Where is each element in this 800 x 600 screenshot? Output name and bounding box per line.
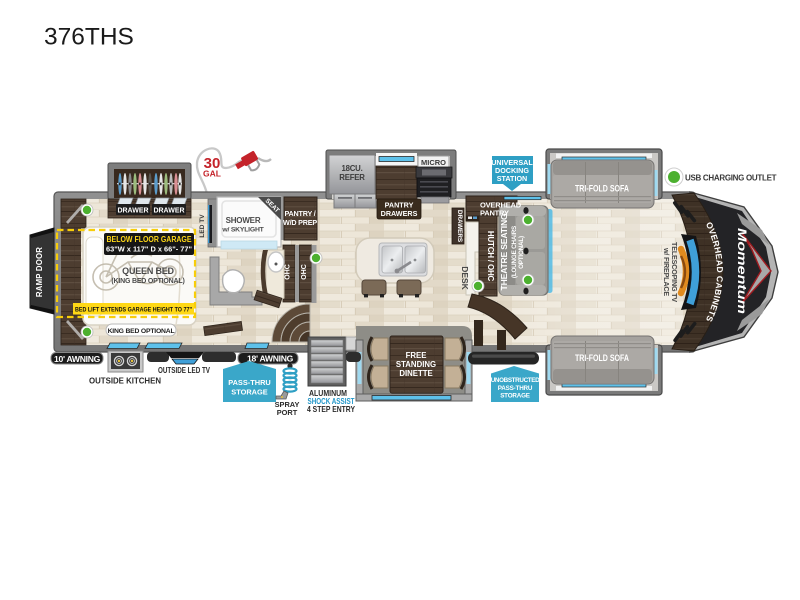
svg-text:376THS: 376THS [44, 24, 134, 51]
svg-text:DRAWERS: DRAWERS [456, 210, 463, 242]
svg-text:REFER: REFER [339, 173, 365, 182]
svg-text:PASS-THRU: PASS-THRU [498, 385, 533, 392]
svg-text:STORAGE: STORAGE [500, 392, 530, 399]
svg-text:63"W x 117" D x 66"- 77": 63"W x 117" D x 66"- 77" [106, 245, 192, 254]
svg-text:DRAWER: DRAWER [153, 208, 184, 215]
svg-text:OPTIONAL): OPTIONAL) [518, 236, 525, 269]
svg-text:BELOW FLOOR GARAGE: BELOW FLOOR GARAGE [107, 235, 193, 244]
svg-text:TRI-FOLD SOFA: TRI-FOLD SOFA [575, 184, 629, 194]
svg-text:PANTRY /: PANTRY / [284, 209, 315, 218]
svg-text:THEATRE SEATING: THEATRE SEATING [499, 213, 509, 290]
svg-text:OUTSIDE LED TV: OUTSIDE LED TV [158, 366, 210, 375]
svg-text:TRI-FOLD SOFA: TRI-FOLD SOFA [575, 353, 629, 363]
svg-text:DRAWER: DRAWER [117, 208, 148, 215]
svg-text:FREE: FREE [406, 351, 427, 360]
svg-text:OHC: OHC [301, 264, 308, 280]
svg-text:(LOUNGE CHAIRS: (LOUNGE CHAIRS [511, 226, 518, 278]
svg-text:GAL: GAL [203, 169, 221, 179]
svg-text:RAMP DOOR: RAMP DOOR [35, 247, 44, 297]
svg-text:W/D PREP: W/D PREP [283, 218, 317, 227]
svg-text:OUTSIDE KITCHEN: OUTSIDE KITCHEN [89, 376, 161, 386]
svg-text:PANTRY: PANTRY [480, 209, 509, 218]
svg-text:BED LIFT EXTENDS GARAGE HEIGHT: BED LIFT EXTENDS GARAGE HEIGHT TO 77" [75, 307, 192, 314]
svg-text:DRAWERS: DRAWERS [381, 209, 418, 218]
svg-text:STATION: STATION [497, 174, 527, 183]
svg-text:USB CHARGING OUTLET: USB CHARGING OUTLET [685, 174, 777, 183]
svg-text:18CU.: 18CU. [341, 164, 362, 173]
svg-text:MICRO: MICRO [421, 158, 446, 167]
svg-text:PORT: PORT [277, 408, 298, 417]
svg-text:KING BED OPTIONAL: KING BED OPTIONAL [108, 328, 175, 335]
svg-text:(KING BED OPTIONAL): (KING BED OPTIONAL) [111, 278, 184, 285]
svg-text:DINETTE: DINETTE [399, 369, 432, 378]
svg-text:TELESCOPING TV: TELESCOPING TV [670, 242, 679, 302]
svg-text:w/ FIREPLACE: w/ FIREPLACE [662, 247, 671, 296]
svg-text:4 STEP ENTRY: 4 STEP ENTRY [307, 405, 355, 414]
svg-text:STORAGE: STORAGE [231, 388, 267, 397]
svg-text:10' AWNING: 10' AWNING [54, 354, 101, 364]
svg-text:w/ SKYLIGHT: w/ SKYLIGHT [221, 227, 264, 234]
svg-text:DESK: DESK [460, 266, 470, 290]
svg-text:OHC: OHC [285, 264, 292, 280]
svg-text:UNOBSTRUCTED: UNOBSTRUCTED [491, 377, 540, 384]
svg-text:SHOWER: SHOWER [226, 216, 261, 225]
svg-text:18' AWNING: 18' AWNING [247, 354, 294, 364]
svg-text:HUTCH / OHC: HUTCH / OHC [486, 231, 495, 282]
svg-text:QUEEN BED: QUEEN BED [122, 266, 174, 276]
svg-text:Momentum: Momentum [735, 228, 747, 314]
svg-text:PASS-THRU: PASS-THRU [228, 378, 271, 387]
svg-text:STANDING: STANDING [396, 360, 436, 369]
svg-text:LED TV: LED TV [199, 214, 206, 238]
